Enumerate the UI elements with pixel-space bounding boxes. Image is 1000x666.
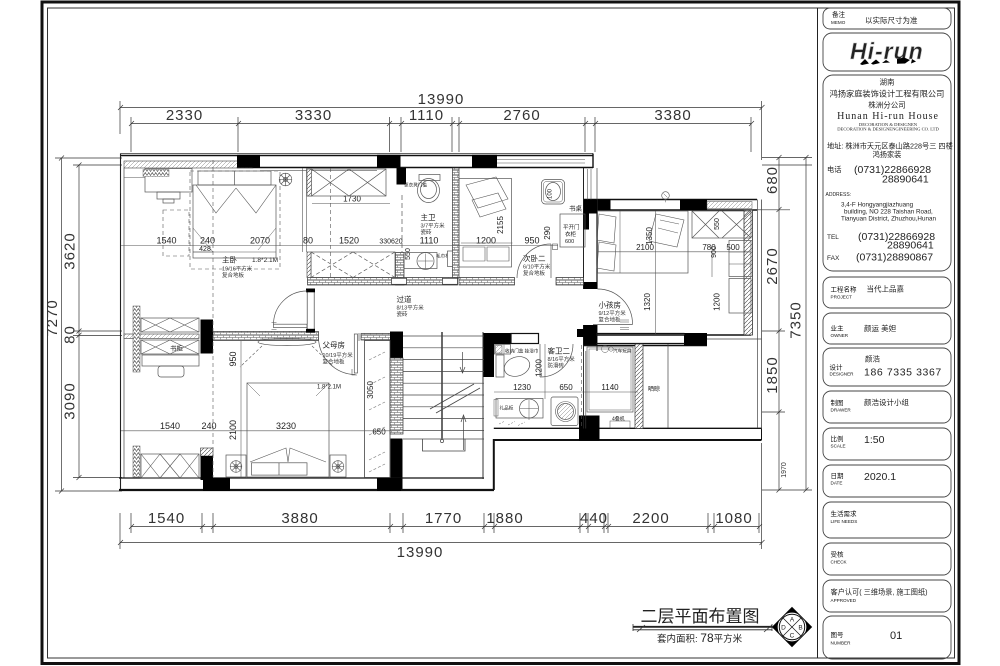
svg-text:2200: 2200 <box>632 510 669 527</box>
svg-text:复合地板: 复合地板 <box>523 269 546 277</box>
svg-text:MEMO: MEMO <box>831 20 846 25</box>
svg-text:13990: 13990 <box>397 544 444 561</box>
svg-text:1110: 1110 <box>409 107 444 124</box>
svg-text:600: 600 <box>565 239 574 245</box>
svg-text:瓷砖: 瓷砖 <box>397 310 409 318</box>
svg-text:A: A <box>790 617 795 624</box>
svg-text:1540: 1540 <box>156 236 176 246</box>
svg-text:13990: 13990 <box>418 91 465 108</box>
svg-text:受核: 受核 <box>831 550 845 559</box>
svg-text:颜运 美妲: 颜运 美妲 <box>864 323 897 333</box>
svg-text:书桌: 书桌 <box>569 204 583 213</box>
svg-text:过道: 过道 <box>397 294 412 304</box>
svg-text:套内面积: 78平方米: 套内面积: 78平方米 <box>657 631 743 645</box>
svg-text:2020.1: 2020.1 <box>864 471 896 483</box>
svg-text:4叠机: 4叠机 <box>612 416 625 423</box>
svg-text:(0731)28890867: (0731)28890867 <box>856 252 933 264</box>
svg-text:550: 550 <box>714 218 721 230</box>
svg-text:D: D <box>781 625 786 632</box>
svg-text:湖南: 湖南 <box>880 77 895 87</box>
svg-text:主卧: 主卧 <box>222 255 237 265</box>
svg-text:制图: 制图 <box>831 398 844 407</box>
svg-text:7350: 7350 <box>788 301 805 338</box>
svg-text:颜浩: 颜浩 <box>865 354 880 364</box>
svg-text:书柜: 书柜 <box>170 344 184 353</box>
svg-text:3230: 3230 <box>276 421 296 431</box>
svg-text:OWNER: OWNER <box>831 333 849 338</box>
svg-text:500: 500 <box>726 243 740 252</box>
svg-text:1200: 1200 <box>713 293 722 311</box>
svg-text:客户认可( 三维场景, 施工图纸): 客户认可( 三维场景, 施工图纸) <box>831 588 928 597</box>
svg-text:7270: 7270 <box>44 299 61 336</box>
svg-text:复合地板: 复合地板 <box>222 271 245 279</box>
svg-text:3620: 3620 <box>62 232 79 269</box>
svg-text:株洲分公司: 株洲分公司 <box>868 100 906 110</box>
svg-text:240: 240 <box>201 421 216 431</box>
svg-text:650: 650 <box>372 428 386 437</box>
svg-text:28890641: 28890641 <box>882 174 929 186</box>
svg-text:3/7平方米: 3/7平方米 <box>421 222 446 230</box>
svg-text:550: 550 <box>405 248 412 260</box>
svg-text:TEL: TEL <box>827 234 839 241</box>
svg-text:父母房: 父母房 <box>323 340 346 350</box>
svg-text:1320: 1320 <box>643 293 652 311</box>
svg-text:1110: 1110 <box>420 236 439 246</box>
svg-text:1880: 1880 <box>486 510 523 527</box>
svg-text:LIFE NEEDS: LIFE NEEDS <box>831 519 858 524</box>
svg-text:汽车玩具: 汽车玩具 <box>613 348 632 355</box>
svg-text:客卫二: 客卫二 <box>548 346 571 356</box>
svg-text:复合地板: 复合地板 <box>323 358 346 366</box>
svg-text:衣柜: 衣柜 <box>565 230 577 238</box>
svg-text:NUMBER: NUMBER <box>831 641 852 646</box>
svg-text:DRAWER: DRAWER <box>831 408 852 413</box>
svg-text:80: 80 <box>303 236 313 246</box>
svg-text:1540: 1540 <box>160 421 180 431</box>
svg-text:330620: 330620 <box>379 239 402 246</box>
svg-text:3380: 3380 <box>654 107 691 124</box>
svg-text:DECORATION & DESIGNENGINEERING: DECORATION & DESIGNENGINEERING CO. LTD <box>837 127 939 132</box>
svg-text:2155: 2155 <box>496 216 505 234</box>
svg-text:building, NO 228 Taishan Road,: building, NO 228 Taishan Road, <box>844 209 933 216</box>
svg-text:日期: 日期 <box>831 472 845 480</box>
svg-text:鸿扬家装: 鸿扬家装 <box>873 150 902 159</box>
svg-text:小孩房: 小孩房 <box>599 300 622 310</box>
svg-text:1970: 1970 <box>781 462 788 478</box>
svg-text:1770: 1770 <box>425 510 462 527</box>
svg-text:电话: 电话 <box>827 165 841 174</box>
svg-text:平开门: 平开门 <box>563 223 580 231</box>
svg-text:1230: 1230 <box>513 383 531 392</box>
svg-text:比例: 比例 <box>831 434 844 443</box>
svg-text:2760: 2760 <box>503 107 540 124</box>
svg-text:10/19平方米: 10/19平方米 <box>323 351 354 359</box>
svg-text:2070: 2070 <box>250 236 270 246</box>
svg-text:鸿扬家庭装饰设计工程有限公司: 鸿扬家庭装饰设计工程有限公司 <box>830 89 945 99</box>
svg-text:19/16平方米: 19/16平方米 <box>222 265 253 273</box>
svg-text:186 7335 3367: 186 7335 3367 <box>864 367 942 379</box>
svg-text:650: 650 <box>559 383 573 392</box>
svg-text:680: 680 <box>764 166 781 194</box>
svg-text:1350: 1350 <box>645 227 654 245</box>
svg-text:CHECK: CHECK <box>831 560 848 565</box>
svg-text:3,4-F Hongyangjiazhuang: 3,4-F Hongyangjiazhuang <box>841 202 914 209</box>
svg-text:2330: 2330 <box>166 107 203 124</box>
svg-text:生活需求: 生活需求 <box>831 509 858 518</box>
svg-text:PROJECT: PROJECT <box>831 295 853 300</box>
svg-text:6/10平方米: 6/10平方米 <box>523 263 551 271</box>
svg-text:DESIGNER: DESIGNER <box>830 372 855 377</box>
svg-text:B: B <box>798 625 802 632</box>
svg-text:Hunan Hi-run House: Hunan Hi-run House <box>837 111 939 122</box>
svg-text:3330: 3330 <box>295 107 332 124</box>
svg-text:8/13平方米: 8/13平方米 <box>397 304 425 312</box>
svg-text:1520: 1520 <box>339 236 359 246</box>
svg-text:颜浩设计小组: 颜浩设计小组 <box>864 397 909 407</box>
svg-text:01: 01 <box>890 630 902 642</box>
svg-text:1200: 1200 <box>476 236 496 246</box>
svg-text:1080: 1080 <box>715 510 752 527</box>
svg-text:1540: 1540 <box>148 510 185 527</box>
svg-text:图号: 图号 <box>831 631 845 639</box>
svg-text:业主: 业主 <box>831 324 845 333</box>
svg-text:备注: 备注 <box>832 10 846 19</box>
svg-text:2100: 2100 <box>228 420 238 440</box>
svg-text:SCALE: SCALE <box>831 444 846 449</box>
svg-text:9/12平方米: 9/12平方米 <box>599 309 627 317</box>
svg-text:工程名称: 工程名称 <box>831 285 858 294</box>
svg-text:950: 950 <box>228 351 238 366</box>
svg-text:2670: 2670 <box>764 247 781 284</box>
svg-text:3090: 3090 <box>62 382 79 419</box>
svg-text:设计: 设计 <box>830 363 844 372</box>
svg-text:80: 80 <box>62 325 79 344</box>
svg-text:ADDRESS:: ADDRESS: <box>826 192 852 198</box>
svg-text:28890641: 28890641 <box>887 240 934 252</box>
svg-text:440: 440 <box>580 510 608 527</box>
svg-text:晒晾: 晒晾 <box>648 385 660 393</box>
svg-text:二层平面布置图: 二层平面布置图 <box>641 607 760 626</box>
svg-text:1140: 1140 <box>601 383 619 392</box>
svg-text:Tianyuan District, Zhuzhou,Hun: Tianyuan District, Zhuzhou,Hunan <box>841 216 936 223</box>
svg-text:1850: 1850 <box>764 356 781 393</box>
svg-text:APPROVED: APPROVED <box>831 598 857 603</box>
svg-text:1:50: 1:50 <box>864 434 885 446</box>
svg-text:当代上品嘉: 当代上品嘉 <box>867 284 905 294</box>
svg-text:290: 290 <box>543 226 552 240</box>
svg-text:收纳门盒 挂浴巾: 收纳门盒 挂浴巾 <box>505 348 539 355</box>
svg-text:FAX: FAX <box>827 255 840 262</box>
svg-text:1200: 1200 <box>535 359 544 377</box>
svg-text:DATE: DATE <box>831 481 843 486</box>
svg-text:100: 100 <box>548 188 554 199</box>
svg-text:复合地板: 复合地板 <box>599 316 622 324</box>
svg-text:3050: 3050 <box>366 381 375 399</box>
svg-text:3880: 3880 <box>281 510 318 527</box>
svg-text:950: 950 <box>524 236 539 246</box>
svg-text:以实际尺寸为准: 以实际尺寸为准 <box>865 15 918 25</box>
svg-text:C: C <box>790 633 795 640</box>
svg-text:900: 900 <box>711 246 718 258</box>
svg-text:主卫: 主卫 <box>421 212 436 222</box>
svg-text:礼品柜: 礼品柜 <box>500 405 514 412</box>
svg-text:瓷砖: 瓷砖 <box>421 228 433 236</box>
